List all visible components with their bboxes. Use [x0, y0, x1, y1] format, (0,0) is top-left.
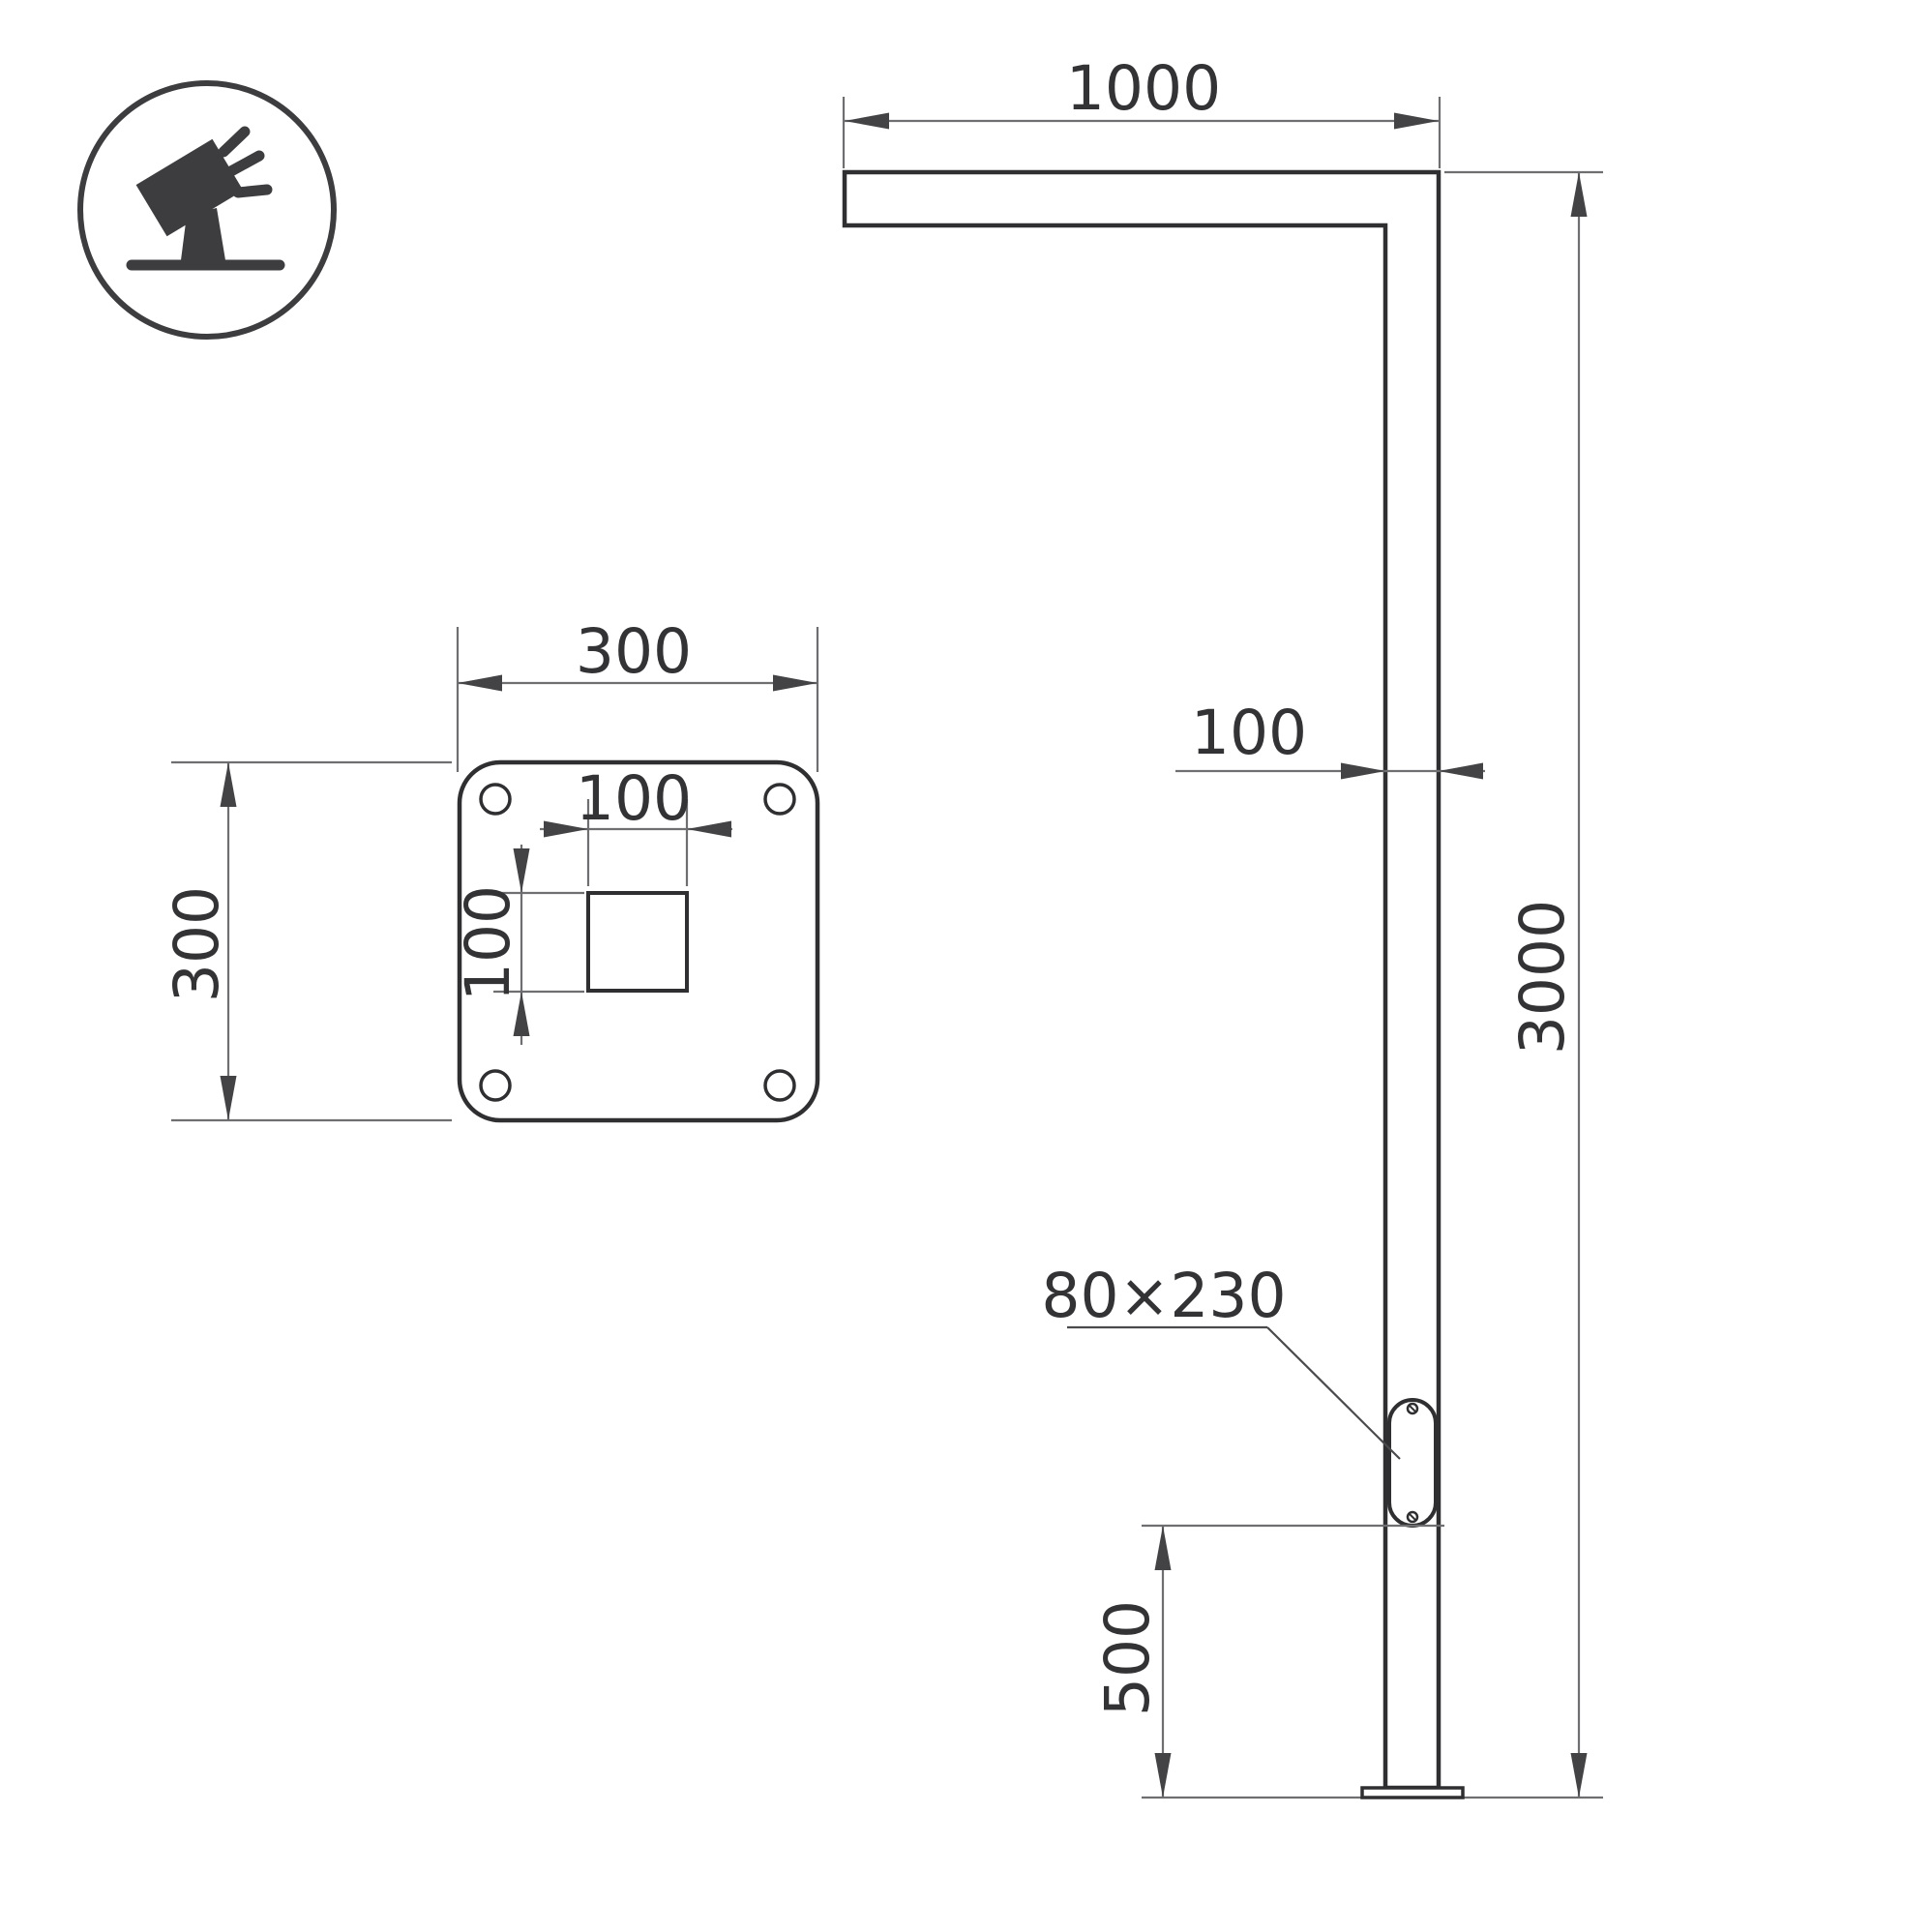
arrowhead-left: [458, 675, 502, 692]
door-offset-label: 500: [1092, 1600, 1163, 1716]
leader-line: [1267, 1327, 1400, 1459]
door-size-label: 80×230: [1041, 1261, 1286, 1331]
arrowhead-right: [1394, 113, 1439, 130]
arrowhead-left: [1439, 763, 1483, 780]
arm-length-label: 1000: [1066, 53, 1221, 124]
arrowhead-right: [1341, 763, 1385, 780]
pole-width-label: 100: [1191, 698, 1307, 768]
door-size-callout: 80×230: [1041, 1261, 1400, 1459]
arrowhead-left: [845, 113, 889, 130]
cutout-height-label: 100: [453, 885, 523, 1001]
arrowhead-up: [1571, 172, 1588, 217]
floodlight-stand: [181, 208, 225, 260]
pole-base-flange: [1362, 1788, 1463, 1798]
arrowhead-down: [1571, 1753, 1588, 1798]
arrowhead-up: [1155, 1526, 1172, 1570]
plate-height-label: 300: [162, 886, 232, 1002]
arrowhead-down: [1155, 1753, 1172, 1798]
light-ray-icon: [229, 156, 259, 172]
technical-drawing-canvas: 300 300 100 100: [0, 0, 1932, 1932]
light-ray-icon: [238, 190, 267, 193]
plate-height-dimension: 300: [162, 762, 452, 1120]
cutout-width-label: 100: [576, 763, 692, 834]
arm-length-dimension: 1000: [844, 53, 1440, 168]
access-door: [1389, 1400, 1436, 1526]
arrowhead-up: [221, 762, 237, 807]
light-ray-icon: [223, 132, 245, 152]
pole-height-dimension: 3000: [1444, 172, 1603, 1798]
pole-height-label: 3000: [1507, 900, 1578, 1055]
arrowhead-right: [773, 675, 817, 692]
arrowhead-down: [221, 1076, 237, 1120]
street-pole-dimensional-drawing: 300 300 100 100: [0, 0, 1932, 1932]
plate-width-label: 300: [576, 616, 692, 687]
pole-and-arm-outline: [845, 172, 1439, 1788]
pole-elevation-view: [845, 172, 1603, 1798]
plate-width-dimension: 300: [458, 616, 817, 772]
floodlight-icon: [80, 83, 334, 337]
